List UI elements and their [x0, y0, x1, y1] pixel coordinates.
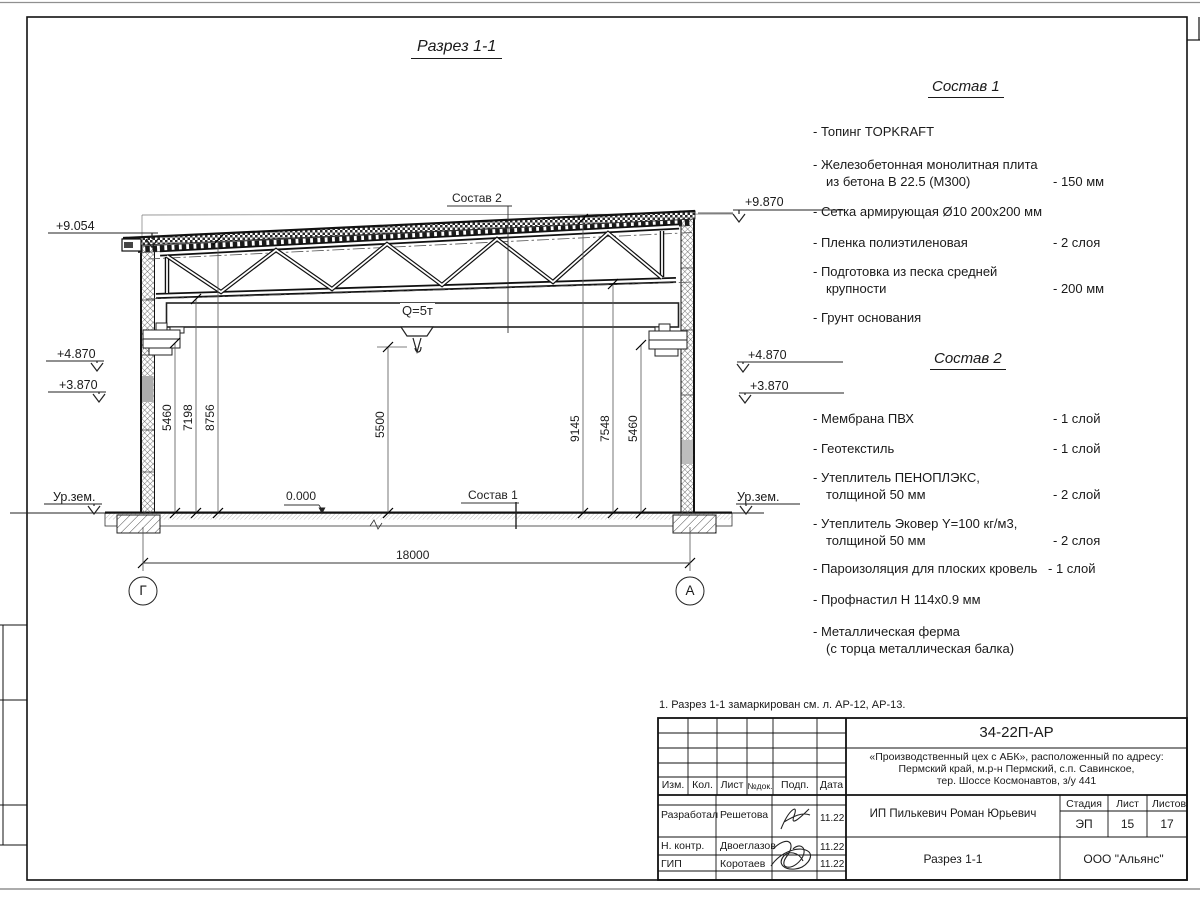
project-address-line1: «Производственный цех с АБК», расположен… [848, 751, 1185, 763]
elevation-label: +9.054 [56, 219, 95, 233]
elevation-label: Ур.зем. [53, 490, 95, 504]
col-header-izm: Изм. [658, 779, 688, 791]
sostav1-item: - Топинг TOPKRAFT [813, 124, 934, 139]
sostav1-item: - Грунт основания [813, 310, 921, 325]
dim-label-vertical: 7198 [181, 404, 195, 431]
name-gip: Коротаев [720, 858, 765, 870]
sostav2-item-value: - 2 слоя [1053, 533, 1100, 548]
elevation-label: +4.870 [748, 348, 787, 362]
sostav2-item: - Утеплитель ПЕНОПЛЭКС, [813, 470, 980, 485]
stage-header: Стадия [1060, 798, 1108, 810]
sostav2-item: - Пароизоляция для плоских кровель [813, 561, 1037, 576]
sostav1-item: - Пленка полиэтиленовая [813, 235, 968, 250]
sostav2-item: - Профнастил Н 114х0.9 мм [813, 592, 981, 607]
sheet-header: Лист [1108, 798, 1147, 810]
sostav1-item-value: - 200 мм [1053, 281, 1104, 296]
role-developer: Разработал [661, 809, 718, 821]
project-address-line2: Пермский край, м.р-н Пермский, с.п. Сави… [848, 763, 1185, 775]
dim-label-vertical: 9145 [568, 415, 582, 442]
sheets-header: Листов [1147, 798, 1191, 810]
client-name: ИП Пилькевич Роман Юрьевич [846, 808, 1060, 820]
dim-label-vertical: 8756 [203, 404, 217, 431]
col-header-list: Лист [717, 779, 747, 791]
col-header-ndok: №док. [747, 781, 773, 791]
sostav2-item-line2: (с торца металлическая балка) [826, 641, 1014, 656]
sheet-title: Разрез 1-1 [846, 852, 1060, 866]
sostav2-item-line2: толщиной 50 мм [826, 533, 926, 548]
signature-strokes [771, 809, 811, 869]
sostav2-ref-label: Состав 2 [450, 191, 504, 205]
dim-label-vertical: 5500 [373, 411, 387, 438]
axis-bubble-label: Г [139, 583, 146, 598]
doc-number: 34-22П-АР [846, 724, 1187, 741]
project-address-line3: тер. Шоссе Космонавтов, з/у 441 [848, 775, 1185, 787]
dim-label-vertical: 5460 [626, 415, 640, 442]
drawing-note: 1. Разрез 1-1 замаркирован см. л. АР-12,… [659, 699, 905, 711]
sostav2-item: - Мембрана ПВХ [813, 411, 914, 426]
sostav1-item: - Железобетонная монолитная плита [813, 157, 1038, 172]
zero-level-label: 0.000 [286, 489, 316, 503]
col-header-podp: Подп. [773, 779, 817, 791]
sostav2-item-value: - 2 слой [1053, 487, 1101, 502]
sostav1-item-line2: из бетона В 22.5 (М300) [826, 174, 970, 189]
date-ncontrol: 11.22 [820, 842, 844, 853]
span-dim-label: 18000 [396, 548, 429, 562]
elevation-label: +3.870 [750, 379, 789, 393]
crane-capacity-label: Q=5т [400, 303, 435, 318]
elevation-label: Ур.зем. [737, 490, 779, 504]
sostav1-item-line2: крупности [826, 281, 886, 296]
role-ncontrol: Н. контр. [661, 840, 704, 852]
dim-label-vertical: 5460 [160, 404, 174, 431]
elevation-label: +4.870 [57, 347, 96, 361]
sheet-value: 15 [1108, 817, 1147, 831]
drawing-title: Разрез 1-1 [411, 38, 502, 59]
col-header-kol: Кол. [688, 779, 717, 791]
sostav1-heading: Состав 1 [928, 78, 1004, 98]
date-developer: 11.22 [820, 813, 844, 824]
sostav2-item-line2: толщиной 50 мм [826, 487, 926, 502]
sostav1-item: - Сетка армирующая Ø10 200х200 мм [813, 204, 1042, 219]
sostav1-item: - Подготовка из песка средней [813, 264, 997, 279]
sostav2-item-value: - 1 слой [1053, 411, 1101, 426]
sostav2-item: - Утеплитель Эковер Y=100 кг/м3, [813, 516, 1017, 531]
stage-value: ЭП [1060, 817, 1108, 831]
left-wall [141, 240, 155, 513]
axis-bubble-label: А [685, 583, 694, 598]
company-name: ООО "Альянс" [1060, 852, 1187, 866]
drawing-sheet: Разрез 1-1 Состав 1 - Топинг TOPKRAFT - … [0, 0, 1200, 900]
col-header-data: Дата [817, 779, 846, 791]
elevation-label: +3.870 [59, 378, 98, 392]
sostav2-heading: Состав 2 [930, 350, 1006, 370]
dim-label-vertical: 7548 [598, 415, 612, 442]
sostav1-item-value: - 2 слоя [1053, 235, 1100, 250]
sostav2-item-value: - 1 слой [1053, 441, 1101, 456]
sostav1-item-value: - 150 мм [1053, 174, 1104, 189]
sostav2-item-value: - 1 слой [1048, 561, 1096, 576]
sostav2-item: - Металлическая ферма [813, 624, 960, 639]
sheets-value: 17 [1147, 817, 1187, 831]
sostav2-item: - Геотекстиль [813, 441, 894, 456]
role-gip: ГИП [661, 858, 682, 870]
name-developer: Решетова [720, 809, 768, 821]
date-gip: 11.22 [820, 859, 844, 870]
elevation-label: +9.870 [745, 195, 784, 209]
span-dimension [129, 527, 704, 605]
name-ncontrol: Двоеглазов [720, 840, 776, 852]
sostav1-ref-label: Состав 1 [466, 488, 520, 502]
right-wall [680, 211, 696, 513]
